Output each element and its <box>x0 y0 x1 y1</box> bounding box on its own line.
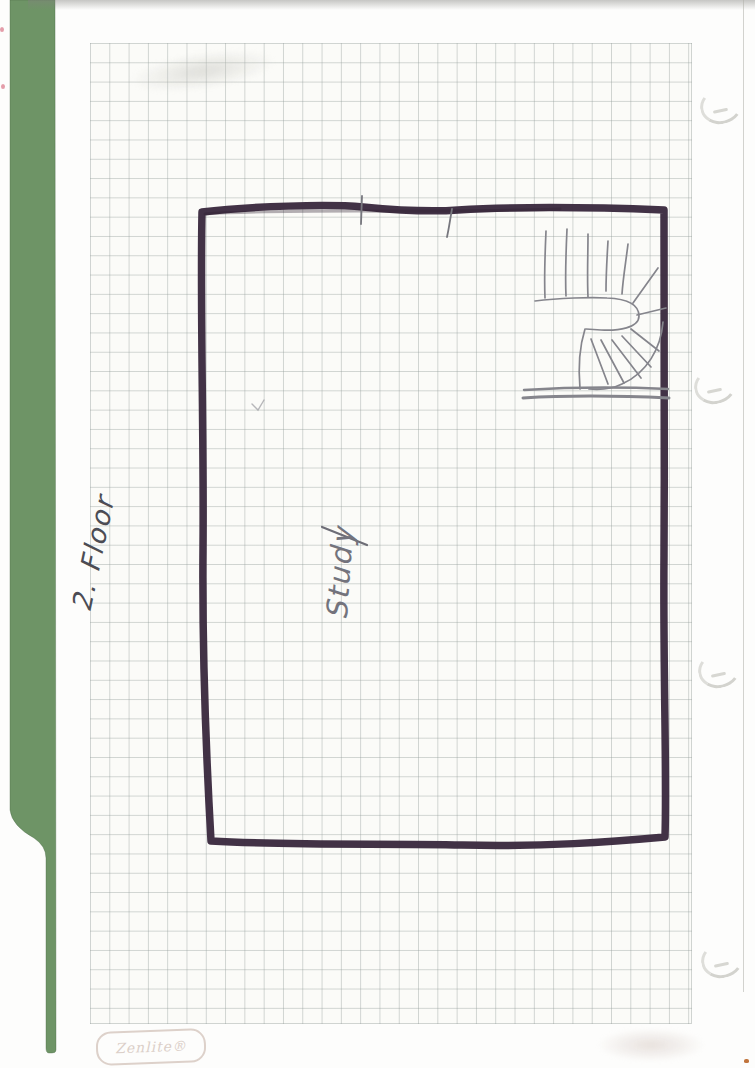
pencil-mark <box>252 400 264 410</box>
stair-landing-line <box>523 396 669 398</box>
stair-edge <box>579 329 585 389</box>
stair-winder <box>612 340 641 378</box>
stair-outer-arc <box>589 322 663 389</box>
wall-tick <box>361 196 362 224</box>
staircase <box>523 229 669 398</box>
paper-brand-text: Zenlite® <box>115 1038 187 1056</box>
stair-riser <box>606 241 608 291</box>
stair-riser <box>545 231 546 298</box>
stair-winder <box>633 268 658 303</box>
stair-riser <box>622 244 628 294</box>
room-outline <box>201 206 665 846</box>
floor-plan-drawing <box>0 0 755 1068</box>
stair-winder <box>591 339 608 384</box>
stair-winder <box>631 329 659 351</box>
scanned-page: 2. Floor Study Zenlite® <box>0 0 755 1068</box>
paper-brand-logo: Zenlite® <box>95 1028 206 1066</box>
stair-riser <box>566 229 567 296</box>
stair-inner-rail <box>535 298 639 331</box>
